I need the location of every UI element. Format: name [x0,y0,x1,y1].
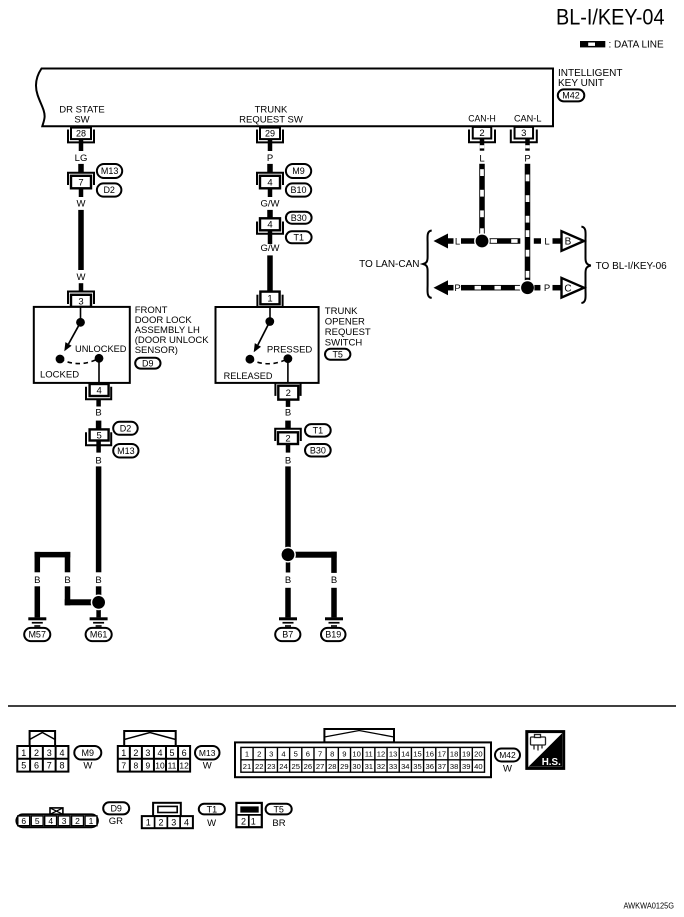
svg-text:24: 24 [279,762,287,771]
svg-text:M9: M9 [82,748,95,758]
svg-text:1: 1 [21,748,26,758]
svg-text:PRESSED: PRESSED [267,344,313,355]
svg-text:G/W: G/W [261,198,280,209]
svg-text:SWITCH: SWITCH [325,338,363,349]
svg-text:32: 32 [377,762,385,771]
svg-text:G/W: G/W [261,243,280,254]
svg-text:BL-I/KEY-04: BL-I/KEY-04 [556,5,665,30]
svg-text:B: B [331,575,337,586]
svg-text:4: 4 [157,748,162,758]
svg-text:2: 2 [285,434,290,445]
svg-text:8: 8 [59,761,64,771]
svg-text:1: 1 [251,817,256,827]
svg-text:B: B [565,237,572,248]
svg-text:38: 38 [450,762,458,771]
svg-text:40: 40 [474,762,482,771]
svg-text:3: 3 [47,748,52,758]
svg-text:M13: M13 [199,748,216,758]
svg-text:M13: M13 [101,166,119,176]
svg-text:6: 6 [306,750,310,759]
svg-text:W: W [77,272,86,283]
svg-text:8: 8 [330,750,334,759]
svg-text:B10: B10 [290,185,306,195]
svg-text:3: 3 [269,750,273,759]
svg-text:33: 33 [389,762,397,771]
svg-text:B: B [34,575,40,586]
svg-text:2: 2 [241,817,246,827]
svg-text:10: 10 [352,750,360,759]
svg-text:10: 10 [155,761,165,771]
svg-text:2: 2 [75,816,80,826]
svg-text:GR: GR [109,816,123,827]
svg-text:4: 4 [48,816,53,826]
svg-text:SENSOR): SENSOR) [135,345,178,356]
svg-text:3: 3 [171,817,176,827]
svg-text:5: 5 [294,750,298,759]
svg-text:B: B [285,408,291,419]
svg-text:REQUEST SW: REQUEST SW [239,114,303,125]
svg-text:3: 3 [78,296,83,307]
svg-text:37: 37 [438,762,446,771]
svg-text:T5: T5 [273,804,284,814]
svg-text:T1: T1 [207,804,218,814]
svg-text:B30: B30 [291,213,307,223]
svg-text:1: 1 [146,817,151,827]
svg-text:TO BL-I/KEY-06: TO BL-I/KEY-06 [596,261,668,272]
svg-text:29: 29 [265,129,275,139]
svg-text:34: 34 [401,762,409,771]
svg-text:14: 14 [401,750,409,759]
svg-text:6: 6 [21,816,26,826]
svg-text:9: 9 [342,750,346,759]
svg-text:9: 9 [146,761,151,771]
svg-text:19: 19 [462,750,470,759]
svg-text:29: 29 [340,762,348,771]
svg-text:P: P [524,154,530,165]
svg-text:5: 5 [35,816,40,826]
svg-text:3: 3 [521,128,526,139]
svg-text:B: B [95,575,101,586]
svg-text:21: 21 [243,762,251,771]
svg-text:25: 25 [291,762,299,771]
svg-text:4: 4 [96,385,101,396]
svg-text:1: 1 [245,750,249,759]
svg-text:6: 6 [182,748,187,758]
svg-text:LG: LG [75,153,88,164]
svg-text:AWKWA0125G: AWKWA0125G [624,901,675,911]
svg-text:D9: D9 [142,358,154,368]
svg-text:1: 1 [121,748,126,758]
svg-text:B: B [95,456,101,467]
svg-text:B: B [64,575,70,586]
svg-text:P: P [544,283,550,294]
svg-text:3: 3 [62,816,67,826]
svg-text:TO LAN-CAN: TO LAN-CAN [359,259,419,270]
svg-text:W: W [77,198,86,209]
svg-text:35: 35 [413,762,421,771]
svg-text:REQUEST: REQUEST [325,327,371,338]
svg-text:KEY UNIT: KEY UNIT [558,78,604,89]
svg-text:18: 18 [450,750,458,759]
svg-text:6: 6 [34,761,39,771]
svg-text:26: 26 [304,762,312,771]
svg-text:D2: D2 [120,424,132,434]
svg-text:RELEASED: RELEASED [224,371,273,382]
svg-text:TRUNK: TRUNK [325,306,358,317]
svg-text:3: 3 [145,748,150,758]
svg-text:28: 28 [76,129,86,139]
svg-text:W: W [207,818,216,829]
svg-text:4: 4 [184,817,189,827]
svg-text:UNLOCKED: UNLOCKED [75,344,127,355]
svg-text:13: 13 [389,750,397,759]
svg-text:4: 4 [267,220,272,231]
svg-text:39: 39 [462,762,470,771]
svg-text:4: 4 [59,748,64,758]
svg-text:12: 12 [377,750,385,759]
svg-text:M61: M61 [90,630,108,640]
svg-text:11: 11 [365,750,373,759]
svg-text:W: W [83,761,92,772]
svg-text:M42: M42 [562,91,580,101]
svg-text:B30: B30 [310,446,326,456]
svg-text:8: 8 [134,761,139,771]
svg-text:31: 31 [365,762,373,771]
svg-text:17: 17 [438,750,446,759]
svg-text:L: L [455,236,460,247]
svg-text:C: C [564,283,571,294]
svg-text:B: B [285,456,291,467]
svg-text:OPENER: OPENER [325,317,365,328]
svg-text:T1: T1 [294,233,305,243]
svg-text:CAN-H: CAN-H [468,113,496,124]
svg-text:16: 16 [425,750,433,759]
svg-text:P: P [454,283,460,294]
svg-text:2: 2 [257,750,261,759]
svg-text:M9: M9 [292,166,305,176]
svg-text:7: 7 [318,750,322,759]
svg-text:11: 11 [168,761,177,771]
svg-text:4: 4 [267,178,272,189]
svg-text:5: 5 [169,748,174,758]
svg-text:22: 22 [255,762,263,771]
svg-text:W: W [203,761,212,772]
svg-text:20: 20 [474,750,482,759]
svg-text:1: 1 [89,816,94,826]
svg-text:H.S.: H.S. [542,757,561,768]
svg-text:7: 7 [47,761,52,771]
svg-text:D9: D9 [110,804,122,814]
svg-text:M57: M57 [28,630,46,640]
svg-text:D2: D2 [103,185,115,195]
svg-text:2: 2 [158,817,163,827]
svg-text:B: B [95,408,101,419]
svg-text:2: 2 [133,748,138,758]
svg-text:7: 7 [121,761,126,771]
svg-text:: DATA LINE: : DATA LINE [609,40,665,51]
svg-text:36: 36 [425,762,433,771]
svg-text:W: W [503,764,512,775]
svg-text:B: B [285,575,291,586]
svg-text:LOCKED: LOCKED [40,370,79,381]
svg-text:T5: T5 [332,350,343,360]
svg-text:4: 4 [281,750,285,759]
svg-text:5: 5 [21,761,26,771]
svg-text:2: 2 [286,388,291,399]
svg-text:SW: SW [74,114,89,125]
svg-text:28: 28 [328,762,336,771]
svg-text:23: 23 [267,762,275,771]
svg-text:L: L [479,154,484,165]
svg-text:B7: B7 [282,630,293,640]
svg-text:T1: T1 [313,426,324,436]
svg-text:15: 15 [413,750,421,759]
svg-text:27: 27 [316,762,324,771]
svg-text:P: P [267,153,273,164]
svg-text:2: 2 [479,128,484,139]
svg-text:30: 30 [352,762,360,771]
svg-text:B19: B19 [325,630,341,640]
svg-text:7: 7 [78,178,83,189]
svg-text:M42: M42 [499,750,516,760]
svg-text:L: L [544,236,549,247]
svg-text:12: 12 [179,761,189,771]
svg-text:1: 1 [267,293,272,304]
svg-text:M13: M13 [117,446,135,456]
svg-text:CAN-L: CAN-L [514,113,542,124]
svg-text:5: 5 [96,430,101,441]
svg-text:2: 2 [34,748,39,758]
svg-text:BR: BR [272,818,285,829]
